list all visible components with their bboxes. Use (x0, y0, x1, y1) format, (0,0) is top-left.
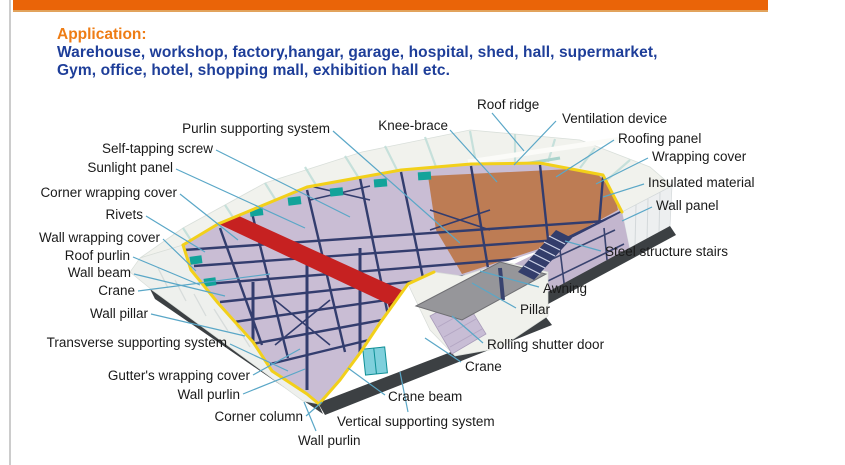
diagram-label: Vertical supporting system (337, 413, 495, 430)
diagram-label: Pillar (520, 301, 550, 318)
diagram-label: Wall pillar (90, 305, 148, 322)
diagram-label: Steel structure stairs (605, 243, 728, 260)
diagram-label: Crane (98, 282, 135, 299)
diagram-label: Corner wrapping cover (40, 184, 177, 201)
diagram-label: Wall purlin (298, 432, 361, 449)
diagram-label: Wall beam (68, 264, 131, 281)
diagram-label: Roof purlin (65, 247, 130, 264)
diagram-label: Gutter's wrapping cover (108, 367, 250, 384)
diagram-label: Sunlight panel (87, 159, 173, 176)
diagram-label: Rolling shutter door (487, 336, 604, 353)
diagram-label: Corner column (214, 408, 303, 425)
warehouse-structure-diagram: Purlin supporting systemKnee-braceSelf-t… (0, 0, 845, 465)
page: Application: Warehouse, workshop, factor… (0, 0, 845, 465)
diagram-label: Roof ridge (477, 96, 539, 113)
diagram-label: Wall wrapping cover (39, 229, 160, 246)
diagram-label: Self-tapping screw (102, 140, 213, 157)
diagram-label: Insulated material (648, 174, 755, 191)
diagram-label: Crane beam (388, 388, 462, 405)
diagram-label: Wall purlin (177, 386, 240, 403)
diagram-label: Knee-brace (378, 117, 448, 134)
diagram-label: Wall panel (656, 197, 719, 214)
diagram-label: Wrapping cover (652, 148, 746, 165)
diagram-label: Transverse supporting system (47, 334, 227, 351)
diagram-label: Roofing panel (618, 130, 701, 147)
diagram-label: Rivets (105, 206, 143, 223)
window-panel (363, 347, 388, 375)
diagram-label: Crane (465, 358, 502, 375)
diagram-label: Purlin supporting system (182, 120, 330, 137)
diagram-label: Awning (543, 280, 587, 297)
diagram-label: Ventilation device (562, 110, 667, 127)
